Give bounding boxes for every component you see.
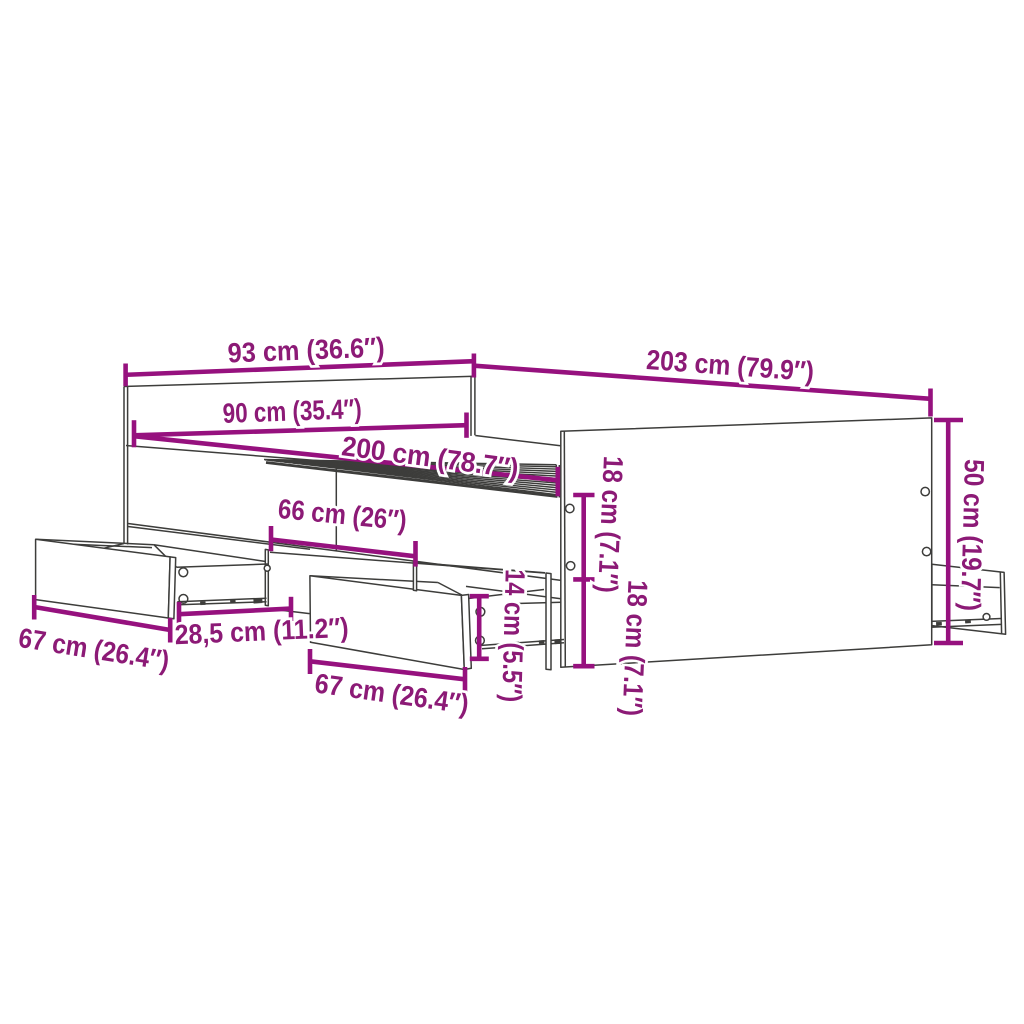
svg-text:14 cm (5.5″): 14 cm (5.5″): [496, 569, 530, 703]
svg-text:50 cm (19.7″): 50 cm (19.7″): [955, 459, 990, 612]
svg-text:18 cm (7.1″): 18 cm (7.1″): [617, 580, 654, 717]
svg-text:90 cm (35.4″): 90 cm (35.4″): [222, 393, 362, 429]
svg-text:18 cm (7.1″): 18 cm (7.1″): [592, 455, 629, 593]
svg-text:93 cm (36.6″): 93 cm (36.6″): [227, 332, 385, 369]
